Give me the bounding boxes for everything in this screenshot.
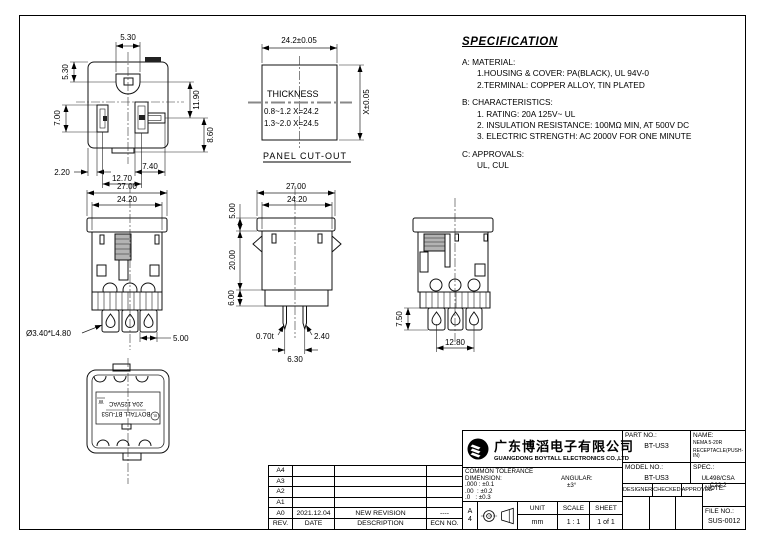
view-side-elevation: 27.00 24.20 5.00 20.00 6.00 0.70t 2.40 6… (222, 178, 407, 373)
dim-24.20: 24.20 (117, 195, 138, 204)
scale-value: 1 : 1 (558, 515, 589, 529)
file-no-label: FILE NO.: (705, 508, 743, 515)
angular-value: ±3° (567, 483, 576, 490)
thickness-row2: 1.3~2.0 X=24.5 (264, 119, 319, 128)
engineering-drawing-sheet: { "spec": { "title": "SPECIFICATION", "l… (0, 0, 770, 544)
rev-cell: A1 (269, 497, 293, 508)
table-row: A1 (269, 497, 463, 508)
view-rear-elevation: 7.50 12.80 (388, 192, 543, 367)
title-block-bottom-row: A 4 UNIT mm SCALE 1 : 1 (463, 502, 622, 529)
file-no-cell: FILE NO.: SUS-0012 (703, 507, 745, 529)
name-value-line1: NEMA 5-20R (693, 441, 743, 447)
part-no-label: PART NO.: (625, 432, 688, 439)
w-mark: W (98, 398, 103, 404)
thickness-row1: 0.8~1.2 X=24.2 (264, 107, 319, 116)
front-terminals (102, 310, 157, 332)
table-row: A4 (269, 466, 463, 477)
spec-line: UL, CUL (462, 160, 750, 171)
side-dimensions-bottom: 0.70t 2.40 6.30 (256, 325, 330, 364)
dim-7.00: 7.00 (53, 110, 62, 126)
dim-5.30-left: 5.30 (61, 64, 70, 80)
projection-symbol-cell (478, 502, 518, 529)
rev-cell: A3 (269, 476, 293, 487)
dim-0.70t: 0.70t (256, 332, 275, 341)
company-name-en: GUANGDONG BOYTALL ELECTRONICS CO.,LTD (494, 456, 634, 462)
dim-11.90: 11.90 (192, 90, 201, 110)
thickness-title: THICKNESS (267, 89, 319, 99)
signoff-section: DESIGNER CHECKED APPROVED (623, 484, 703, 529)
cutout-caption: PANEL CUT-OUT (263, 151, 347, 161)
model-no-cell: MODEL NO.: BT-US3 (623, 463, 691, 483)
company-logo-icon (466, 437, 490, 461)
revision-table: A4 A3 A2 A1 A0 2021.12.04 NEW REVISION (268, 465, 463, 530)
name-value-line2: RECEPTACLE(PUSH-IN) (693, 449, 743, 460)
designer-label: DESIGNER (623, 484, 653, 496)
front-body (87, 218, 167, 310)
dim-5.30-top: 5.30 (120, 33, 136, 42)
unit-cell: UNIT mm (518, 502, 558, 529)
spec-line: 3. ELECTRIC STRENGTH: AC 2000V FOR ONE M… (462, 131, 750, 142)
dim-6.00: 6.00 (227, 290, 236, 306)
dim-5.00: 5.00 (228, 203, 237, 219)
approved-signature-cell (676, 497, 702, 529)
paper-size-cell: A 4 (463, 502, 478, 529)
dim-terminal-hole: Ø3.40*L4.80 (26, 329, 71, 338)
spec-cell: SPEC.: UL498/CSA C22.2 (691, 463, 745, 483)
specification-block: SPECIFICATION A: MATERIAL: 1.HOUSING & C… (462, 36, 750, 172)
specification-lines: A: MATERIAL: 1.HOUSING & COVER: PA(BLACK… (462, 57, 750, 172)
marking-brand: BOYTALL BT-US3 (101, 410, 151, 416)
face-neutral-slot (97, 105, 108, 132)
spec-line: C: APPROVALS: (462, 149, 750, 160)
third-angle-projection-icon (480, 505, 516, 527)
rev-cell: A2 (269, 487, 293, 498)
sheet-cell: SHEET 1 of 1 (590, 502, 622, 529)
tolerance-row: .0 : ±0.3 (465, 495, 620, 502)
model-no-value: BT-US3 (625, 475, 688, 482)
spec-line: 2.TERMINAL: COPPER ALLOY, TIN PLATED (462, 80, 750, 91)
dim-5.00: 5.00 (173, 334, 189, 343)
angular-label: ANGULAR: (561, 476, 593, 483)
dim-20.00: 20.00 (228, 249, 237, 270)
table-row: A0 2021.12.04 NEW REVISION ---- (269, 508, 463, 519)
side-dimensions-top: 27.00 24.20 (257, 182, 335, 229)
cutout-thickness-table: THICKNESS 0.8~1.2 X=24.2 1.3~2.0 X=24.5 (264, 89, 319, 128)
view-receptacle-face: 5.30 5.30 11.90 7.00 8.60 2.20 7.40 12.7… (18, 28, 238, 198)
dim-24.20: 24.20 (287, 195, 308, 204)
dim-x: X±0.05 (362, 89, 371, 115)
file-no-value: SUS-0012 (705, 518, 743, 525)
dim-7.50: 7.50 (395, 311, 404, 327)
spec-line: 1. RATING: 20A 125V~ UL (462, 109, 750, 120)
view-panel-cutout: 24.2±0.05 X±0.05 THICKNESS 0.8~1.2 X=24.… (240, 32, 405, 172)
checked-label: CHECKED (653, 484, 681, 496)
dim-27.00: 27.00 (286, 182, 307, 191)
spec-line: 1.HOUSING & COVER: PA(BLACK), UL 94V-0 (462, 68, 750, 79)
side-body (253, 218, 341, 329)
scale-label: SCALE (558, 502, 589, 515)
face-dimensions: 5.30 5.30 11.90 7.00 8.60 2.20 7.40 12.7… (53, 33, 215, 188)
scale-cell: SCALE 1 : 1 (558, 502, 590, 529)
dim-27.00: 27.00 (117, 182, 138, 191)
spec-line: 2. INSULATION RESISTANCE: 100MΩ MIN, AT … (462, 120, 750, 131)
dim-24.2: 24.2±0.05 (281, 36, 317, 45)
dim-6.30: 6.30 (287, 355, 303, 364)
note-cell: NOTE: (703, 484, 745, 507)
model-no-label: MODEL NO.: (625, 464, 688, 471)
part-no-cell: PART NO.: BT-US3 (623, 431, 691, 462)
company-header: 广东博滔电子有限公司 GUANGDONG BOYTALL ELECTRONICS… (463, 431, 622, 468)
table-header-row: REV. DATE DESCRIPTION ECN NO. (269, 518, 463, 529)
part-no-value: BT-US3 (625, 443, 688, 450)
view-front-elevation: 27.00 24.20 Ø3.40*L4.80 5.00 (20, 178, 242, 370)
spec-label: SPEC.: (693, 464, 743, 471)
title-block-right: PART NO.: BT-US3 NAME: NEMA 5-20R RECEPT… (623, 431, 745, 529)
name-cell: NAME: NEMA 5-20R RECEPTACLE(PUSH-IN) (691, 431, 745, 462)
dim-8.60: 8.60 (206, 127, 215, 143)
face-t-slot (135, 102, 165, 133)
designer-signature-cell (623, 497, 650, 529)
sheet-label: SHEET (590, 502, 622, 515)
company-name-cn: 广东博滔电子有限公司 (494, 436, 634, 455)
specification-title: SPECIFICATION (462, 36, 750, 48)
dim-2.20: 2.20 (54, 168, 70, 177)
spec-line: A: MATERIAL: (462, 57, 750, 68)
note-label: NOTE: (705, 485, 743, 492)
ul-logo-text: UL (153, 414, 158, 418)
cutout-centerlines (248, 56, 352, 148)
rev-cell: A4 (269, 466, 293, 477)
checked-signature-cell (650, 497, 677, 529)
table-row: A2 (269, 487, 463, 498)
spec-line: B: CHARACTERISTICS: (462, 97, 750, 108)
sheet-value: 1 of 1 (590, 515, 622, 529)
title-block-left: 广东博滔电子有限公司 GUANGDONG BOYTALL ELECTRONICS… (463, 431, 623, 529)
marking-rating: 20A 125VAC (108, 400, 143, 406)
title-block: 广东博滔电子有限公司 GUANGDONG BOYTALL ELECTRONICS… (462, 430, 746, 530)
rev-cell: A0 (269, 508, 293, 519)
table-row: A3 (269, 476, 463, 487)
name-label: NAME: (693, 432, 743, 439)
dim-7.40: 7.40 (142, 162, 158, 171)
tolerance-cell: COMMON TOLERANCE DIMENSION: .000 : ±0.1 … (463, 468, 622, 502)
dim-2.40: 2.40 (314, 332, 330, 341)
front-dimensions-top: 27.00 24.20 (87, 182, 167, 230)
dim-12.80: 12.80 (445, 338, 466, 347)
view-back-markings: BOYTALL BT-US3 20A 125VAC UL W (70, 356, 205, 486)
unit-label: UNIT (518, 502, 557, 515)
unit-value: mm (518, 515, 557, 529)
rear-body (413, 218, 493, 308)
